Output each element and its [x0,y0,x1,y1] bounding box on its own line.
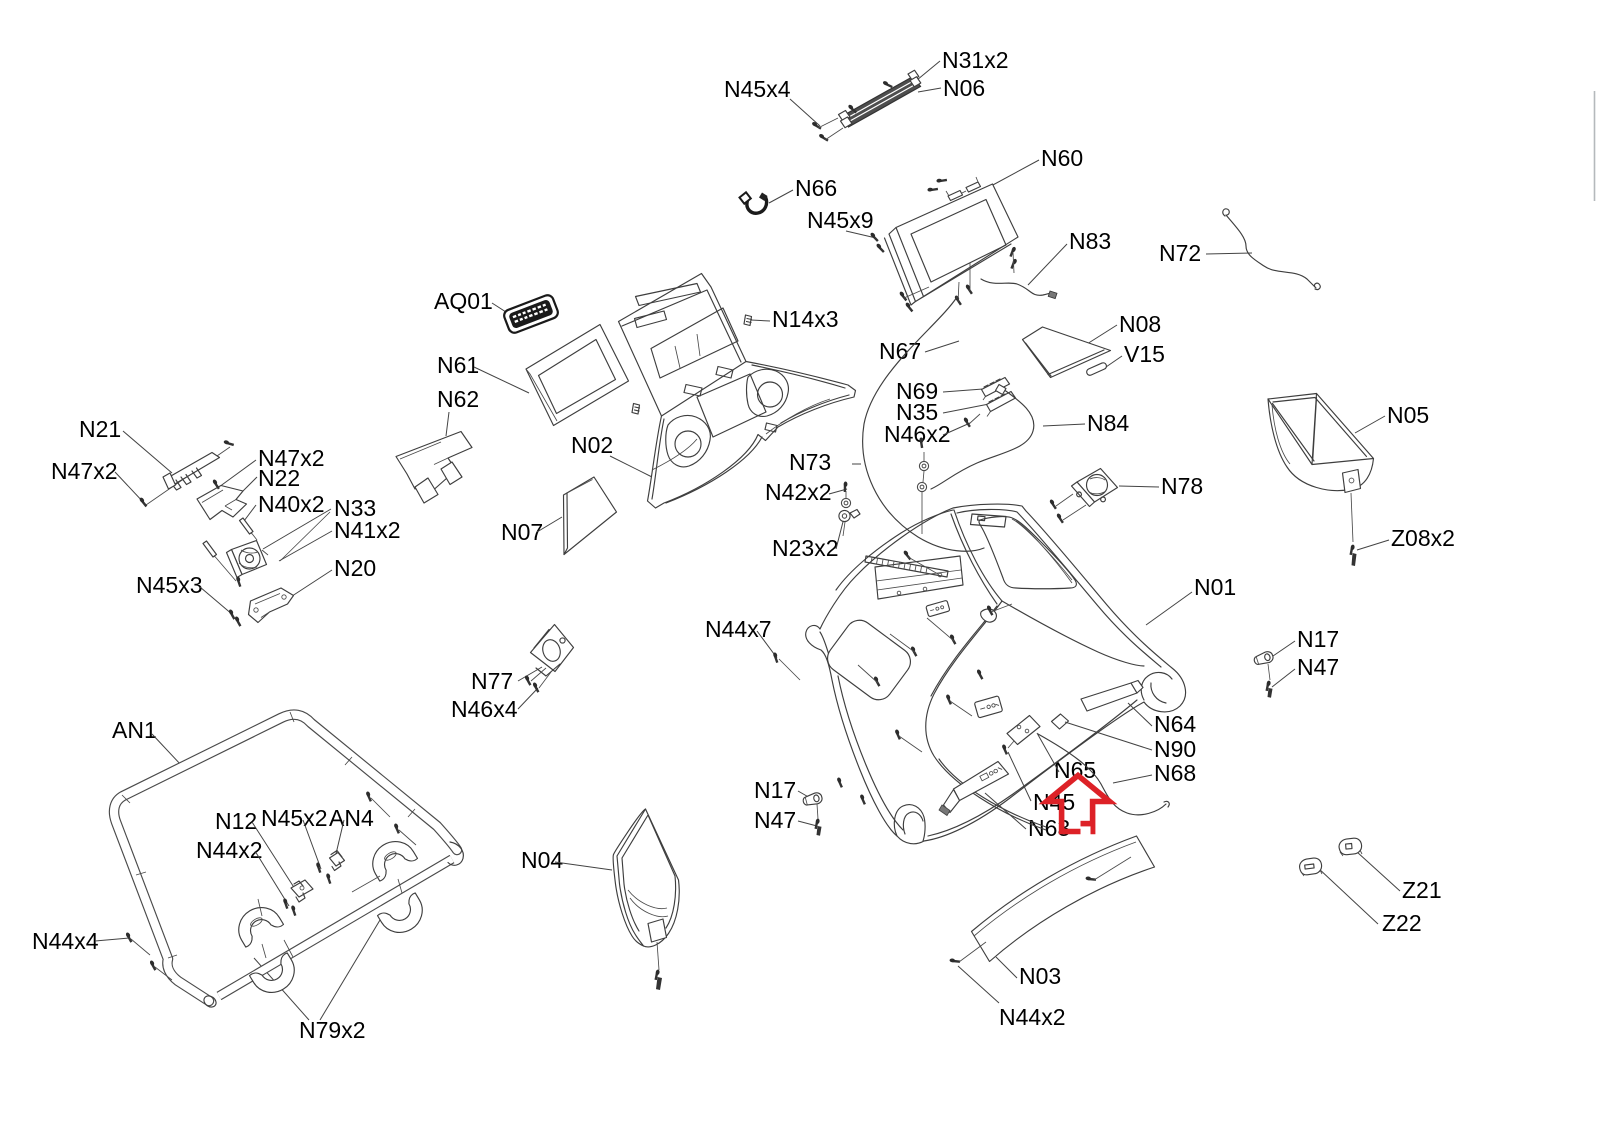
svg-text:N47: N47 [1297,654,1339,680]
svg-text:N73: N73 [789,449,831,475]
svg-text:N23x2: N23x2 [772,535,838,561]
svg-text:N31x2: N31x2 [942,47,1008,73]
svg-text:N45x3: N45x3 [136,572,202,598]
svg-text:N64: N64 [1154,711,1196,737]
svg-text:N78: N78 [1161,473,1203,499]
svg-text:N60: N60 [1041,145,1083,171]
svg-text:N46x4: N46x4 [451,696,518,722]
svg-text:N08: N08 [1119,311,1161,337]
svg-text:N01: N01 [1194,574,1236,600]
svg-text:N17: N17 [754,777,796,803]
svg-text:N83: N83 [1069,228,1111,254]
svg-text:N07: N07 [501,519,543,545]
svg-text:N44x2: N44x2 [999,1004,1065,1030]
svg-text:N66: N66 [795,175,837,201]
svg-text:N84: N84 [1087,410,1129,436]
svg-text:N04: N04 [521,847,563,873]
svg-text:N47x2: N47x2 [51,458,117,484]
svg-text:N44x2: N44x2 [196,837,262,863]
svg-text:N42x2: N42x2 [765,479,831,505]
svg-text:N45x9: N45x9 [807,207,873,233]
svg-text:N44x4: N44x4 [32,928,99,954]
svg-text:N61: N61 [437,352,479,378]
svg-text:N02: N02 [571,432,613,458]
svg-text:AN4: AN4 [329,805,374,831]
svg-text:N21: N21 [79,416,121,442]
svg-text:N41x2: N41x2 [334,517,400,543]
svg-text:Z21: Z21 [1402,877,1442,903]
svg-text:N14x3: N14x3 [772,306,838,332]
svg-text:N77: N77 [471,668,513,694]
svg-text:N05: N05 [1387,402,1429,428]
svg-text:N47: N47 [754,807,796,833]
svg-text:N45x4: N45x4 [724,76,791,102]
svg-text:N22: N22 [258,465,300,491]
svg-text:N79x2: N79x2 [299,1017,365,1043]
svg-text:N03: N03 [1019,963,1061,989]
svg-text:N12: N12 [215,808,257,834]
svg-text:V15: V15 [1124,341,1165,367]
svg-text:N44x7: N44x7 [705,616,771,642]
svg-text:N17: N17 [1297,626,1339,652]
svg-text:N62: N62 [437,386,479,412]
svg-text:N72: N72 [1159,240,1201,266]
svg-text:N40x2: N40x2 [258,491,324,517]
svg-text:AQ01: AQ01 [434,288,493,314]
svg-text:N20: N20 [334,555,376,581]
svg-text:N90: N90 [1154,736,1196,762]
svg-text:N06: N06 [943,75,985,101]
svg-text:AN1: AN1 [112,717,157,743]
svg-text:Z22: Z22 [1382,910,1422,936]
svg-text:N45x2: N45x2 [261,805,327,831]
svg-text:Z08x2: Z08x2 [1391,525,1455,551]
svg-text:N68: N68 [1154,760,1196,786]
svg-text:N46x2: N46x2 [884,421,950,447]
